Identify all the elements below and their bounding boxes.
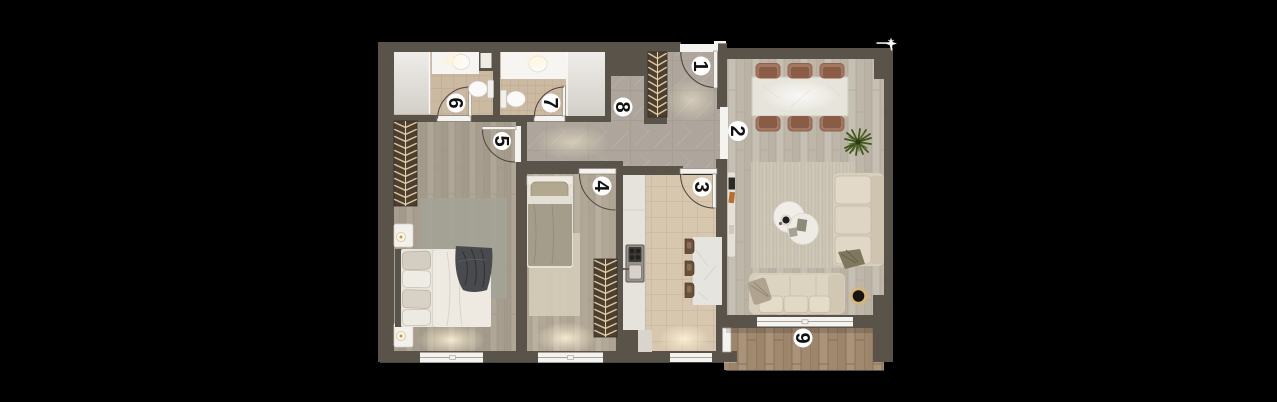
- svg-text:6: 6: [444, 97, 466, 108]
- svg-text:5: 5: [490, 135, 512, 146]
- svg-text:2: 2: [726, 125, 748, 136]
- svg-text:1: 1: [689, 60, 711, 71]
- svg-text:9: 9: [791, 332, 813, 343]
- svg-text:7: 7: [539, 97, 561, 108]
- svg-text:4: 4: [590, 180, 612, 192]
- svg-text:3: 3: [690, 181, 712, 192]
- svg-text:8: 8: [611, 101, 633, 112]
